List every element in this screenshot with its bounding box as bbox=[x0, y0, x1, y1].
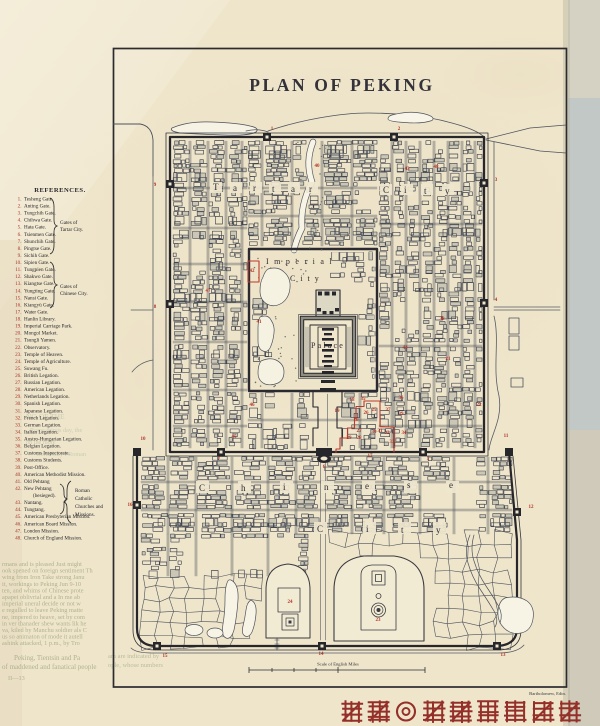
svg-text:3.: 3. bbox=[18, 211, 22, 217]
svg-text:ople, whose numbers: ople, whose numbers bbox=[108, 662, 164, 669]
svg-text:New Pehtang: New Pehtang bbox=[24, 486, 52, 492]
svg-text:Palace: Palace bbox=[311, 341, 345, 350]
svg-text:Customs Inspectorate.: Customs Inspectorate. bbox=[24, 451, 70, 457]
svg-text:38: 38 bbox=[440, 317, 446, 322]
svg-text:40: 40 bbox=[315, 164, 321, 169]
svg-text:48: 48 bbox=[434, 165, 440, 170]
svg-text:French Legation.: French Legation. bbox=[24, 415, 59, 421]
svg-text:am are indicated by: am are indicated by bbox=[108, 653, 160, 660]
svg-text:C: C bbox=[199, 483, 205, 493]
svg-text:Tungpien Gate.: Tungpien Gate. bbox=[24, 267, 56, 273]
svg-text:29.: 29. bbox=[15, 394, 21, 400]
svg-text:Churches and: Churches and bbox=[75, 504, 104, 510]
svg-text:Chihwa Gate.: Chihwa Gate. bbox=[24, 218, 52, 224]
svg-text:4.: 4. bbox=[18, 218, 22, 224]
svg-text:17: 17 bbox=[368, 454, 374, 459]
svg-text:23: 23 bbox=[376, 618, 382, 623]
svg-text:16.: 16. bbox=[15, 302, 21, 308]
svg-text:14.: 14. bbox=[15, 288, 21, 294]
svg-text:46.: 46. bbox=[15, 521, 21, 527]
svg-text:19: 19 bbox=[335, 409, 341, 414]
svg-text:23.: 23. bbox=[15, 352, 21, 358]
svg-text:24: 24 bbox=[288, 600, 294, 605]
svg-text:35.: 35. bbox=[15, 437, 21, 443]
svg-text:Kiangyü Gate.: Kiangyü Gate. bbox=[24, 302, 54, 308]
svg-text:Imperial: Imperial bbox=[266, 257, 337, 266]
svg-text:Nantang.: Nantang. bbox=[24, 500, 43, 506]
svg-text:Sipien Gate.: Sipien Gate. bbox=[24, 260, 49, 266]
svg-text:Yungting Gate.: Yungting Gate. bbox=[24, 288, 55, 294]
svg-text:43: 43 bbox=[405, 167, 411, 172]
svg-text:29: 29 bbox=[347, 436, 353, 441]
svg-text:Catholic: Catholic bbox=[75, 496, 93, 502]
svg-text:Kiangtse Gate.: Kiangtse Gate. bbox=[24, 281, 55, 287]
svg-text:32: 32 bbox=[385, 431, 391, 436]
svg-text:42: 42 bbox=[250, 269, 256, 274]
svg-text:Hata Gate.: Hata Gate. bbox=[24, 225, 46, 231]
svg-text:44.: 44. bbox=[15, 507, 21, 513]
svg-text:Tungchih Gate.: Tungchih Gate. bbox=[24, 211, 56, 217]
svg-text:37.: 37. bbox=[15, 451, 21, 457]
svg-text:Tsienmen Gate.: Tsienmen Gate. bbox=[24, 232, 56, 238]
svg-text:12.: 12. bbox=[15, 274, 21, 280]
svg-text:Shakwo Gate.: Shakwo Gate. bbox=[24, 274, 53, 280]
svg-text:41.: 41. bbox=[15, 479, 21, 485]
svg-text:28.: 28. bbox=[15, 387, 21, 393]
svg-text:20: 20 bbox=[354, 418, 360, 423]
svg-text:a: a bbox=[233, 183, 237, 193]
svg-text:Tartar City.: Tartar City. bbox=[60, 227, 83, 233]
svg-text:ashink attacked, 1 p.m., by T: ashink attacked, 1 p.m., by Tro bbox=[2, 640, 80, 647]
svg-text:Temple of Agriculture.: Temple of Agriculture. bbox=[24, 358, 71, 365]
svg-text:Shunchih Gate.: Shunchih Gate. bbox=[24, 239, 56, 245]
svg-text:45.: 45. bbox=[15, 514, 21, 520]
svg-text:Sichih Gate.: Sichih Gate. bbox=[24, 253, 49, 259]
svg-text:48.: 48. bbox=[15, 535, 21, 541]
svg-text:REFERENCES.: REFERENCES. bbox=[34, 187, 85, 194]
svg-text:Scale of English Miles: Scale of English Miles bbox=[317, 662, 359, 667]
svg-text:PLAN OF PEKING: PLAN OF PEKING bbox=[249, 75, 434, 95]
svg-text:Missions.: Missions. bbox=[75, 512, 95, 518]
svg-text:Gates of: Gates of bbox=[60, 219, 78, 226]
svg-text:Italian Legation.: Italian Legation. bbox=[24, 430, 58, 436]
svg-text:21.: 21. bbox=[15, 338, 21, 344]
svg-text:27: 27 bbox=[357, 429, 363, 434]
svg-text:Roman: Roman bbox=[75, 488, 90, 494]
svg-text:36: 36 bbox=[399, 396, 405, 401]
svg-text:12: 12 bbox=[529, 505, 535, 510]
svg-text:34: 34 bbox=[402, 431, 408, 436]
svg-text:24.: 24. bbox=[15, 359, 21, 365]
svg-text:C: C bbox=[317, 524, 323, 534]
svg-text:Chinese City.: Chinese City. bbox=[60, 291, 88, 297]
svg-text:39.: 39. bbox=[15, 465, 21, 471]
svg-text:9.: 9. bbox=[18, 253, 22, 259]
svg-text:y: y bbox=[436, 525, 441, 535]
svg-text:28: 28 bbox=[357, 436, 363, 441]
svg-text:(besieged).: (besieged). bbox=[33, 492, 56, 499]
svg-text:13.: 13. bbox=[15, 281, 21, 287]
svg-text:8.: 8. bbox=[18, 246, 22, 252]
svg-text:a: a bbox=[291, 184, 295, 194]
svg-text:25: 25 bbox=[372, 408, 378, 413]
svg-text:47: 47 bbox=[206, 289, 212, 294]
svg-text:10.: 10. bbox=[15, 260, 21, 266]
svg-text:Tungtang.: Tungtang. bbox=[24, 507, 45, 513]
svg-text:Anting Gate.: Anting Gate. bbox=[24, 204, 51, 210]
svg-text:London Mission.: London Mission. bbox=[24, 528, 59, 534]
svg-text:39: 39 bbox=[399, 412, 405, 417]
svg-text:10: 10 bbox=[141, 437, 147, 442]
svg-text:Water Gate.: Water Gate. bbox=[24, 310, 48, 316]
svg-text:11: 11 bbox=[504, 434, 509, 439]
svg-text:Suwang Fu.: Suwang Fu. bbox=[24, 366, 49, 372]
svg-text:17.: 17. bbox=[15, 310, 21, 316]
svg-text:Mongol Market.: Mongol Market. bbox=[24, 331, 58, 337]
svg-text:Temple of Heaven.: Temple of Heaven. bbox=[24, 351, 63, 358]
svg-text:32.: 32. bbox=[15, 415, 21, 421]
svg-text:19.: 19. bbox=[15, 324, 21, 330]
svg-text:Tsungli Yamen.: Tsungli Yamen. bbox=[24, 338, 56, 344]
svg-text:Japanese Legation.: Japanese Legation. bbox=[24, 408, 63, 414]
svg-text:25.: 25. bbox=[15, 366, 21, 372]
svg-text:s: s bbox=[407, 480, 411, 490]
svg-text:34.: 34. bbox=[15, 430, 21, 436]
svg-text:2.: 2. bbox=[18, 204, 22, 210]
svg-text:18: 18 bbox=[350, 398, 356, 403]
svg-text:1.: 1. bbox=[18, 197, 22, 203]
svg-text:Post-Office.: Post-Office. bbox=[24, 464, 49, 471]
svg-text:Netherlands Legation.: Netherlands Legation. bbox=[24, 394, 70, 400]
svg-text:T: T bbox=[213, 182, 219, 192]
svg-text:5.: 5. bbox=[18, 225, 22, 231]
svg-text:13: 13 bbox=[501, 653, 507, 658]
svg-text:American Legation.: American Legation. bbox=[24, 387, 65, 393]
svg-text:C: C bbox=[383, 185, 389, 195]
svg-text:n: n bbox=[324, 482, 329, 492]
svg-text:16: 16 bbox=[128, 503, 134, 508]
svg-text:r: r bbox=[253, 183, 256, 193]
svg-text:Belgian Legation.: Belgian Legation. bbox=[24, 444, 61, 450]
svg-text:27.: 27. bbox=[15, 380, 21, 386]
svg-text:Old Pehtang: Old Pehtang bbox=[24, 479, 50, 485]
svg-text:42.: 42. bbox=[15, 486, 21, 492]
svg-text:Russian Legation.: Russian Legation. bbox=[24, 380, 61, 386]
svg-text:31: 31 bbox=[378, 429, 384, 434]
svg-text:20.: 20. bbox=[15, 331, 21, 337]
svg-text:41: 41 bbox=[257, 320, 263, 325]
svg-text:43.: 43. bbox=[15, 500, 21, 506]
svg-text:American Methodist Mission.: American Methodist Mission. bbox=[24, 472, 86, 478]
svg-text:6.: 6. bbox=[18, 232, 22, 238]
svg-text:22: 22 bbox=[477, 403, 483, 408]
svg-text:33: 33 bbox=[390, 440, 396, 445]
svg-text:30.: 30. bbox=[15, 401, 21, 407]
svg-text:Nansi Gate.: Nansi Gate. bbox=[24, 295, 48, 301]
svg-text:18.: 18. bbox=[15, 317, 21, 323]
svg-text:British Legation.: British Legation. bbox=[24, 373, 59, 379]
svg-text:21: 21 bbox=[446, 357, 452, 362]
svg-text:11.: 11. bbox=[15, 267, 21, 273]
svg-text:City: City bbox=[290, 274, 324, 283]
svg-text:37: 37 bbox=[386, 408, 392, 413]
svg-text:of maddened and fanatical peop: of maddened and fanatical people bbox=[2, 663, 96, 671]
svg-text:Imperial Carriage Park.: Imperial Carriage Park. bbox=[24, 324, 72, 330]
svg-text:Hanlin Library.: Hanlin Library. bbox=[24, 317, 56, 323]
svg-text:Customs Students.: Customs Students. bbox=[24, 458, 62, 464]
svg-text:45: 45 bbox=[232, 435, 238, 440]
svg-text:r: r bbox=[309, 184, 312, 194]
svg-text:15.: 15. bbox=[15, 295, 21, 301]
svg-text:44: 44 bbox=[403, 346, 409, 351]
svg-text:40.: 40. bbox=[15, 472, 21, 478]
svg-text:Peking, Tientsin and Pa: Peking, Tientsin and Pa bbox=[14, 654, 81, 662]
svg-text:26: 26 bbox=[364, 411, 370, 416]
svg-text:15: 15 bbox=[163, 654, 169, 659]
svg-text:Church of England Mission.: Church of England Mission. bbox=[24, 534, 82, 541]
svg-text:14: 14 bbox=[319, 652, 325, 657]
svg-text:Pingtse Gate.: Pingtse Gate. bbox=[24, 246, 51, 252]
svg-text:30: 30 bbox=[372, 430, 378, 435]
svg-text:e: e bbox=[449, 480, 453, 490]
svg-text:47.: 47. bbox=[15, 528, 21, 534]
svg-text:36.: 36. bbox=[15, 444, 21, 450]
svg-text:46: 46 bbox=[250, 403, 256, 408]
svg-text:Spanish Legation.: Spanish Legation. bbox=[24, 401, 61, 407]
svg-text:Tesheng Gate.: Tesheng Gate. bbox=[24, 197, 53, 203]
svg-text:7.: 7. bbox=[18, 239, 22, 245]
svg-text:38.: 38. bbox=[15, 458, 21, 464]
svg-text:German Legation.: German Legation. bbox=[24, 422, 61, 428]
svg-text:35: 35 bbox=[361, 397, 367, 402]
svg-text:33.: 33. bbox=[15, 422, 21, 428]
svg-text:31.: 31. bbox=[15, 408, 21, 414]
svg-text:Gates of: Gates of bbox=[60, 283, 78, 290]
svg-text:y: y bbox=[445, 186, 450, 196]
svg-text:Austro-Hungarian Legation.: Austro-Hungarian Legation. bbox=[24, 437, 82, 443]
svg-text:II—13: II—13 bbox=[8, 675, 25, 682]
svg-text:h: h bbox=[241, 483, 246, 493]
svg-text:e: e bbox=[365, 481, 369, 491]
svg-text:Observatory.: Observatory. bbox=[24, 345, 50, 351]
svg-text:22.: 22. bbox=[15, 345, 21, 351]
svg-text:26.: 26. bbox=[15, 373, 21, 379]
